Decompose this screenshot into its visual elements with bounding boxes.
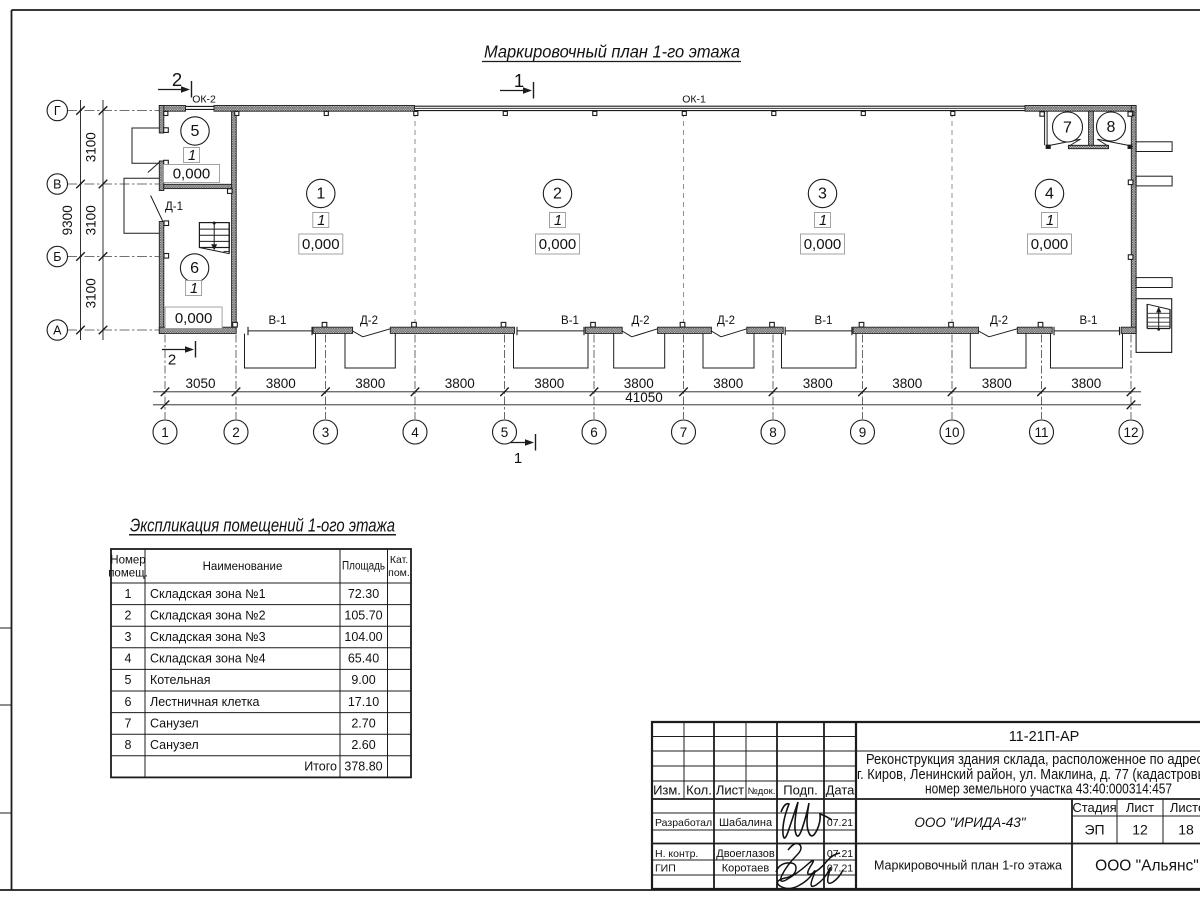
svg-text:6: 6 [125, 695, 132, 709]
svg-text:65.40: 65.40 [348, 652, 379, 666]
svg-text:Д-2: Д-2 [990, 315, 1008, 327]
svg-text:Д-2: Д-2 [360, 315, 378, 327]
svg-text:8: 8 [769, 425, 777, 440]
svg-text:1: 1 [819, 213, 827, 229]
svg-text:8: 8 [1107, 119, 1116, 136]
svg-text:Д-2: Д-2 [717, 315, 735, 327]
svg-text:А: А [53, 323, 62, 337]
svg-text:Складская зона №4: Складская зона №4 [150, 652, 266, 666]
svg-text:№док.: №док. [748, 786, 776, 797]
svg-text:2: 2 [168, 352, 176, 369]
svg-text:ОК-1: ОК-1 [682, 94, 706, 106]
svg-text:3100: 3100 [84, 205, 99, 235]
svg-text:пом.: пом. [388, 567, 410, 579]
svg-text:9.00: 9.00 [351, 673, 375, 687]
svg-text:378.80: 378.80 [344, 760, 382, 774]
svg-text:Б: Б [53, 250, 61, 264]
svg-text:Лестничная клетка: Лестничная клетка [150, 695, 260, 709]
svg-text:72.30: 72.30 [348, 587, 379, 601]
svg-text:0,000: 0,000 [173, 166, 211, 183]
svg-text:1: 1 [316, 186, 325, 203]
svg-text:0,000: 0,000 [302, 236, 340, 253]
svg-text:номер земельного участка 43:40: номер земельного участка 43:40:000314:45… [925, 781, 1172, 798]
svg-text:3800: 3800 [892, 376, 922, 391]
svg-text:3800: 3800 [982, 376, 1012, 391]
svg-text:5: 5 [501, 425, 509, 440]
svg-text:Н. контр.: Н. контр. [655, 848, 698, 860]
svg-text:Дата: Дата [826, 783, 856, 798]
svg-text:Подп.: Подп. [783, 783, 818, 798]
svg-text:2.70: 2.70 [351, 716, 375, 730]
svg-text:3800: 3800 [266, 376, 296, 391]
svg-text:Санузел: Санузел [150, 716, 199, 730]
svg-text:10: 10 [944, 425, 959, 440]
svg-text:2: 2 [125, 608, 132, 622]
svg-text:ООО "ИРИДА-43": ООО "ИРИДА-43" [914, 815, 1026, 830]
svg-text:3800: 3800 [803, 376, 833, 391]
svg-text:Шабалина: Шабалина [719, 817, 773, 829]
svg-text:12: 12 [1123, 425, 1138, 440]
svg-text:3050: 3050 [185, 376, 215, 391]
svg-text:1: 1 [190, 281, 198, 297]
svg-text:Котельная: Котельная [150, 673, 211, 687]
svg-text:Стадия: Стадия [1072, 800, 1116, 815]
svg-text:2: 2 [172, 69, 182, 90]
svg-text:Площадь: Площадь [342, 561, 385, 573]
svg-text:7: 7 [1063, 120, 1072, 137]
svg-text:9: 9 [859, 425, 867, 440]
svg-text:5: 5 [191, 123, 200, 140]
svg-text:Наименование: Наименование [203, 561, 283, 573]
svg-text:ГИП: ГИП [655, 863, 676, 875]
svg-text:Итого: Итого [304, 760, 337, 774]
svg-text:1: 1 [317, 213, 325, 229]
svg-text:3800: 3800 [445, 376, 475, 391]
svg-text:2.60: 2.60 [351, 738, 375, 752]
svg-text:Санузел: Санузел [150, 738, 199, 752]
svg-text:3: 3 [818, 186, 827, 203]
svg-text:Кол.: Кол. [686, 783, 712, 798]
svg-text:41050: 41050 [625, 390, 663, 405]
svg-text:Изм.: Изм. [653, 783, 681, 798]
svg-text:В-1: В-1 [1080, 315, 1098, 327]
svg-text:8: 8 [125, 738, 132, 752]
svg-text:3800: 3800 [1071, 376, 1101, 391]
svg-text:1: 1 [514, 450, 522, 467]
svg-text:1: 1 [554, 213, 562, 229]
svg-text:Лист: Лист [1126, 800, 1154, 815]
svg-text:ОК-2: ОК-2 [192, 94, 216, 106]
svg-text:11: 11 [1034, 425, 1048, 440]
svg-text:4: 4 [1045, 186, 1054, 203]
svg-text:3: 3 [125, 630, 132, 644]
svg-text:0,000: 0,000 [1031, 236, 1069, 253]
svg-text:ЭП: ЭП [1084, 822, 1104, 838]
svg-text:9300: 9300 [60, 205, 75, 235]
svg-text:4: 4 [411, 425, 419, 440]
svg-text:В-1: В-1 [561, 315, 579, 327]
svg-text:Маркировочный план 1-го этажа: Маркировочный план 1-го этажа [874, 859, 1062, 873]
svg-text:Листов: Листов [1170, 800, 1200, 815]
svg-text:3: 3 [322, 425, 330, 440]
svg-text:Складская зона №3: Складская зона №3 [150, 630, 266, 644]
svg-text:1: 1 [514, 70, 524, 91]
svg-text:Складская зона №2: Складская зона №2 [150, 608, 266, 622]
svg-text:Д-2: Д-2 [631, 315, 649, 327]
svg-text:1: 1 [1046, 213, 1054, 229]
svg-text:Лист: Лист [716, 783, 744, 798]
svg-text:2: 2 [553, 186, 562, 203]
svg-text:4: 4 [125, 652, 132, 666]
svg-text:1: 1 [125, 587, 132, 601]
svg-text:3800: 3800 [355, 376, 385, 391]
svg-text:Маркировочный план 1-го этажа: Маркировочный план 1-го этажа [484, 42, 740, 62]
svg-text:105.70: 105.70 [344, 608, 382, 622]
svg-text:Г: Г [54, 104, 61, 118]
svg-text:0,000: 0,000 [804, 236, 842, 253]
svg-text:12: 12 [1132, 822, 1148, 838]
svg-text:В-1: В-1 [269, 315, 287, 327]
svg-text:В: В [53, 177, 61, 191]
svg-text:3800: 3800 [713, 376, 743, 391]
svg-text:3800: 3800 [624, 376, 654, 391]
svg-text:6: 6 [190, 260, 199, 277]
svg-text:Двоеглазов: Двоеглазов [716, 848, 775, 860]
svg-text:17.10: 17.10 [348, 695, 379, 709]
svg-text:0,000: 0,000 [175, 310, 213, 327]
svg-text:3100: 3100 [84, 278, 99, 308]
svg-text:Экспликация помещений 1-ого эт: Экспликация помещений 1-ого этажа [130, 516, 395, 536]
svg-text:В-1: В-1 [815, 315, 833, 327]
svg-text:Разработал: Разработал [655, 817, 712, 829]
svg-text:5: 5 [125, 673, 132, 687]
svg-text:3100: 3100 [84, 132, 99, 162]
svg-text:7: 7 [125, 716, 132, 730]
svg-text:104.00: 104.00 [344, 630, 382, 644]
svg-text:1: 1 [188, 148, 196, 164]
svg-text:3800: 3800 [534, 376, 564, 391]
svg-text:Кат.: Кат. [390, 554, 408, 566]
svg-text:ООО "Альянс": ООО "Альянс" [1095, 858, 1199, 875]
svg-text:Д-1: Д-1 [165, 201, 183, 213]
svg-text:Номер: Номер [110, 555, 145, 567]
svg-text:2: 2 [232, 425, 240, 440]
svg-text:помещ.: помещ. [108, 568, 148, 580]
svg-text:0,000: 0,000 [539, 236, 577, 253]
svg-text:6: 6 [590, 425, 598, 440]
svg-text:18: 18 [1178, 822, 1194, 838]
svg-text:7: 7 [680, 425, 688, 440]
svg-text:11-21П-АР: 11-21П-АР [1009, 729, 1080, 745]
svg-text:1: 1 [161, 425, 169, 440]
svg-text:Коротаев: Коротаев [722, 863, 770, 875]
svg-text:Складская зона №1: Складская зона №1 [150, 587, 266, 601]
